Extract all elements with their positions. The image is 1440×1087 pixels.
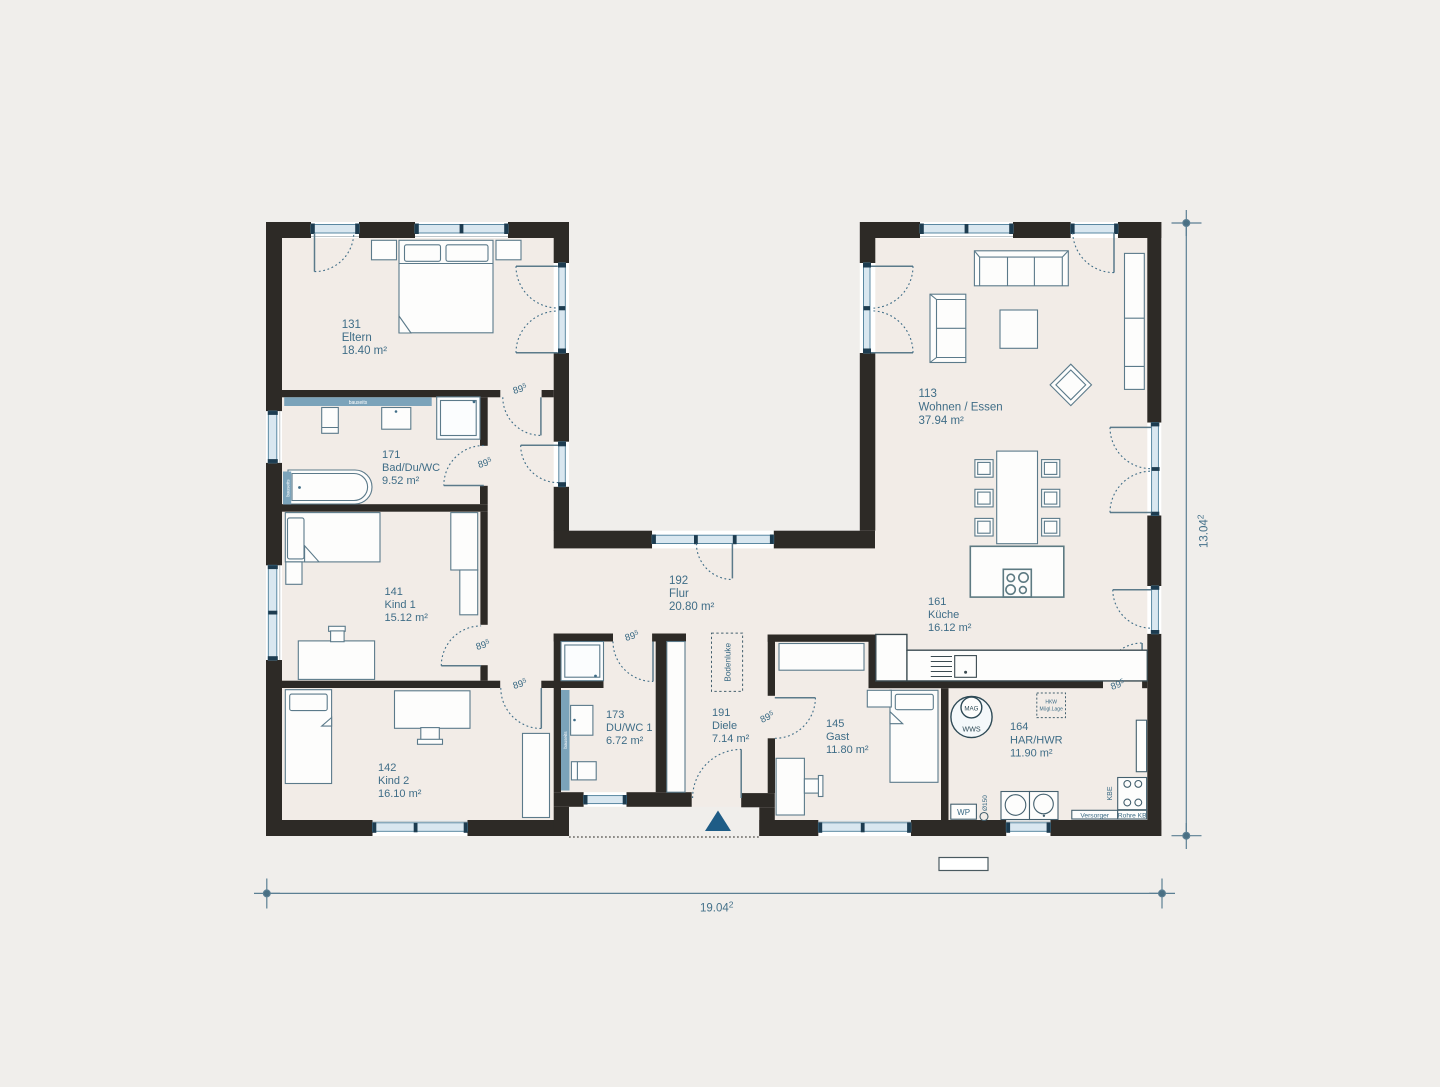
svg-text:19.042: 19.042	[700, 900, 734, 915]
svg-text:bauseits: bauseits	[286, 479, 291, 497]
svg-text:20.80 m²: 20.80 m²	[669, 601, 715, 613]
svg-text:16.10 m²: 16.10 m²	[378, 788, 422, 800]
svg-text:Eltern: Eltern	[342, 332, 372, 344]
svg-text:145: 145	[826, 718, 844, 730]
svg-text:15.12 m²: 15.12 m²	[385, 612, 429, 624]
svg-text:191: 191	[712, 707, 730, 719]
svg-text:Versorger: Versorger	[1080, 812, 1109, 819]
svg-text:141: 141	[385, 586, 403, 598]
svg-text:Ø150: Ø150	[982, 795, 989, 811]
svg-text:Kind 1: Kind 1	[385, 599, 416, 611]
svg-text:KBE: KBE	[1107, 786, 1114, 800]
svg-text:Bad/Du/WC: Bad/Du/WC	[382, 462, 440, 474]
svg-text:Diele: Diele	[712, 720, 737, 732]
svg-text:WWS: WWS	[962, 725, 981, 734]
svg-text:Rohre KB: Rohre KB	[1118, 812, 1147, 819]
svg-text:192: 192	[669, 575, 688, 587]
svg-text:13.042: 13.042	[1196, 514, 1211, 548]
svg-text:Flur: Flur	[669, 588, 689, 600]
svg-text:bauseits: bauseits	[563, 731, 568, 749]
svg-text:Mögl.Lage: Mögl.Lage	[1040, 707, 1064, 713]
svg-text:6.72 m²: 6.72 m²	[606, 735, 644, 747]
svg-text:Bodenluke: Bodenluke	[724, 643, 733, 682]
svg-text:Küche: Küche	[928, 609, 959, 621]
svg-text:173: 173	[606, 709, 624, 721]
svg-text:Gast: Gast	[826, 731, 849, 743]
svg-text:HKW: HKW	[1045, 700, 1057, 706]
svg-text:DU/WC 1: DU/WC 1	[606, 722, 652, 734]
svg-text:bauseits: bauseits	[349, 400, 368, 406]
svg-text:18.40 m²: 18.40 m²	[342, 345, 388, 357]
svg-text:11.80 m²: 11.80 m²	[826, 744, 869, 756]
svg-text:171: 171	[382, 449, 400, 461]
svg-text:7.14 m²: 7.14 m²	[712, 733, 750, 745]
svg-text:MAG: MAG	[964, 706, 978, 713]
svg-text:Wohnen / Essen: Wohnen / Essen	[919, 402, 1003, 414]
svg-text:11.90 m²: 11.90 m²	[1010, 748, 1053, 760]
svg-text:16.12 m²: 16.12 m²	[928, 622, 972, 634]
svg-text:161: 161	[928, 596, 946, 608]
svg-text:HAR/HWR: HAR/HWR	[1010, 735, 1063, 747]
svg-text:9.52 m²: 9.52 m²	[382, 475, 420, 487]
svg-text:164: 164	[1010, 721, 1028, 733]
svg-text:Kind 2: Kind 2	[378, 775, 409, 787]
svg-text:142: 142	[378, 762, 396, 774]
svg-text:131: 131	[342, 319, 361, 331]
svg-text:WP: WP	[957, 808, 970, 817]
svg-text:113: 113	[919, 388, 937, 400]
svg-text:37.94 m²: 37.94 m²	[919, 415, 965, 427]
